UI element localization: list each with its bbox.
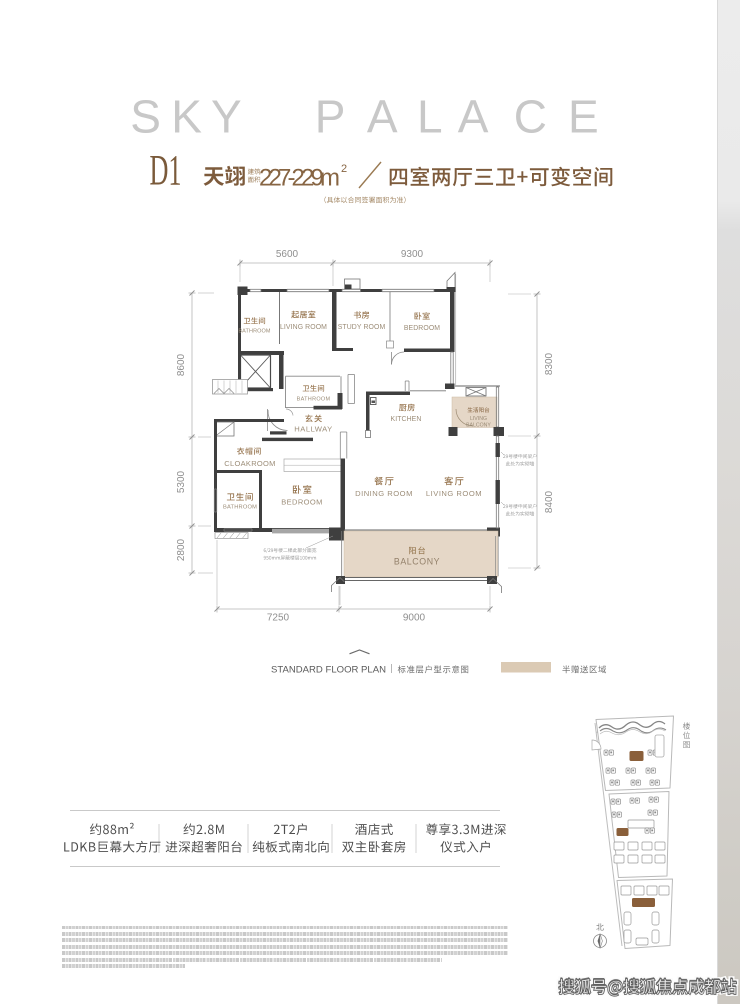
svg-text:8300: 8300 xyxy=(544,352,555,375)
svg-text:2800: 2800 xyxy=(176,538,187,561)
svg-text:LIVING ROOM: LIVING ROOM xyxy=(426,489,482,498)
svg-text:227-229m: 227-229m xyxy=(259,165,340,192)
svg-text:BALCONY: BALCONY xyxy=(466,423,491,429)
svg-text:5600: 5600 xyxy=(276,249,299,260)
svg-text:LIVING: LIVING xyxy=(470,416,487,422)
svg-text:LIVING ROOM: LIVING ROOM xyxy=(280,324,327,331)
svg-text:2: 2 xyxy=(341,163,347,175)
svg-text:BATHROOM: BATHROOM xyxy=(223,505,257,511)
svg-text:CLOAKROOM: CLOAKROOM xyxy=(224,459,275,468)
svg-text:D1: D1 xyxy=(150,148,182,195)
svg-text:SKYPALACE: SKYPALACE xyxy=(130,91,598,143)
svg-text:9000: 9000 xyxy=(403,613,426,624)
svg-text:BALCONY: BALCONY xyxy=(394,557,440,567)
svg-text:BATHROOM: BATHROOM xyxy=(297,397,331,403)
svg-text:DINING ROOM: DINING ROOM xyxy=(355,489,413,498)
svg-text:BATHROOM: BATHROOM xyxy=(238,329,270,335)
svg-text:7250: 7250 xyxy=(267,613,290,624)
svg-text:HALLWAY: HALLWAY xyxy=(294,425,332,434)
svg-text:STANDARD FLOOR PLAN: STANDARD FLOOR PLAN xyxy=(271,665,386,676)
svg-text:STUDY ROOM: STUDY ROOM xyxy=(338,324,386,331)
svg-text:8600: 8600 xyxy=(176,353,187,376)
svg-text:KITCHEN: KITCHEN xyxy=(391,416,422,423)
svg-text:9300: 9300 xyxy=(401,249,424,260)
svg-text:8400: 8400 xyxy=(544,490,555,513)
svg-text:BEDROOM: BEDROOM xyxy=(404,325,440,332)
svg-text:BEDROOM: BEDROOM xyxy=(281,498,323,507)
svg-text:5300: 5300 xyxy=(176,470,187,493)
